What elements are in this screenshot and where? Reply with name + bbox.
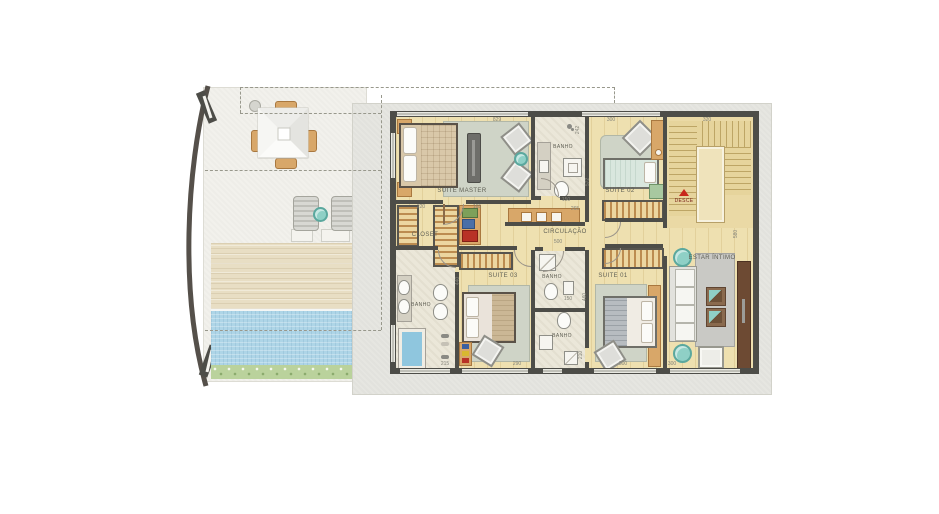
wall-segment [459,246,517,250]
wall-segment [585,117,589,222]
room-label-suite-01: SUITE 01 [598,273,627,279]
sink [563,281,574,295]
toilet [557,312,571,329]
toilet [544,283,558,300]
swimming-pool [211,309,352,367]
sofa-cushion [675,305,695,323]
window [582,112,660,116]
wall-segment [663,117,667,228]
garden-strip [211,365,352,379]
shower-stall [564,351,578,365]
armchair [698,346,724,369]
window [670,369,740,373]
wall-segment [585,250,589,348]
pillow [403,155,417,182]
projection-line [240,113,381,114]
projection-line [614,87,615,103]
blanket [492,294,514,341]
room-label-circulacao: CIRCULAÇÃO [543,229,586,235]
desk-stool [655,149,662,156]
bed-suite03 [462,292,516,343]
toilet [433,284,448,301]
shower-fixture [441,334,449,338]
blanket [605,298,627,346]
cabinet-door [551,212,562,222]
wall-segment [535,308,585,312]
projection-line [205,170,381,171]
sink [398,280,410,295]
bedside-shelf [459,342,472,366]
projection-line [205,330,381,331]
wall-segment [560,196,585,200]
window [462,369,528,373]
pillow [466,297,479,317]
shelf-item [462,230,478,242]
bed-master [399,123,458,188]
bidet [433,303,448,320]
wall-segment [663,256,667,368]
shower-fixture [441,355,449,359]
coffee-table [706,287,726,306]
sofa-cushion [675,269,695,287]
shelf-item [462,344,469,349]
projection-line [240,87,615,88]
wall-segment [390,200,443,204]
floor-plan: DESCE [0,0,939,514]
stair-treads-top [697,121,751,147]
wall-segment [535,196,541,200]
pillow [641,323,653,343]
wall-segment [466,200,531,204]
window [543,369,562,373]
window [391,133,395,178]
blanket [421,125,456,186]
room-label-suite-master: SUITE MASTER [437,188,486,194]
room-label-closet: CLOSET [412,232,438,238]
shower-drain [568,163,578,173]
shelf-item [462,208,478,218]
bathtub [399,329,425,369]
stair-direction-label: DESCE [675,198,694,204]
door-leaf [443,204,445,224]
pillow [644,162,656,183]
pillow [403,127,417,154]
window [391,325,395,362]
stair-landing [697,147,724,222]
stair-treads-right [720,147,751,195]
side-table [313,207,328,222]
room-label-suite-02: SUITE 02 [605,188,634,194]
sofa-cushion [675,323,695,341]
wardrobe [459,252,513,270]
projection-line [381,95,382,330]
tv-cabinet [467,133,481,183]
window [400,369,450,373]
shower-stall [563,158,582,177]
pillow [466,318,479,338]
wall-segment [565,247,585,251]
stair-direction-icon [679,189,689,196]
shower-head-icon [567,124,572,129]
room-label-estar-intimo: ESTAR ÍNTIMO [688,255,735,261]
wardrobe [397,205,419,247]
projection-line [240,87,241,113]
sofa [669,266,697,342]
room-label-banho-mid-bottom: BANHO [552,333,572,339]
wall-segment [585,362,589,368]
wall-segment [531,117,535,200]
sink [539,160,549,173]
shelf-item [462,358,469,363]
wall-segment [753,111,759,374]
table-decor [709,290,722,302]
window [594,369,656,373]
panel-handle [742,299,745,323]
room-label-banho-mid-top: BANHO [542,274,562,280]
wall-segment [455,272,459,368]
round-table [514,152,528,166]
tv-panel [737,261,751,369]
wall-segment [390,246,438,250]
wall-segment [535,247,543,251]
plant [673,344,692,363]
window [397,112,528,116]
pouf [649,184,664,199]
wood-deck [211,243,352,309]
shelf-item [462,219,475,229]
room-label-suite-03: SUITE 03 [488,273,517,279]
room-label-banho-master: BANHO [411,302,431,308]
blanket [605,160,637,187]
cabinet-door [521,212,532,222]
umbrella-table-icon [256,106,312,162]
sink [398,299,410,314]
cabinet-door [536,212,547,222]
sink [539,335,553,350]
shelf-item [462,351,469,356]
room-label-banho-top: BANHO [553,144,573,150]
pillow [641,301,653,321]
tv-screen [472,140,475,176]
table-decor [709,311,722,323]
coffee-table [706,308,726,327]
wall-segment [505,222,585,226]
sofa-cushion [675,287,695,305]
